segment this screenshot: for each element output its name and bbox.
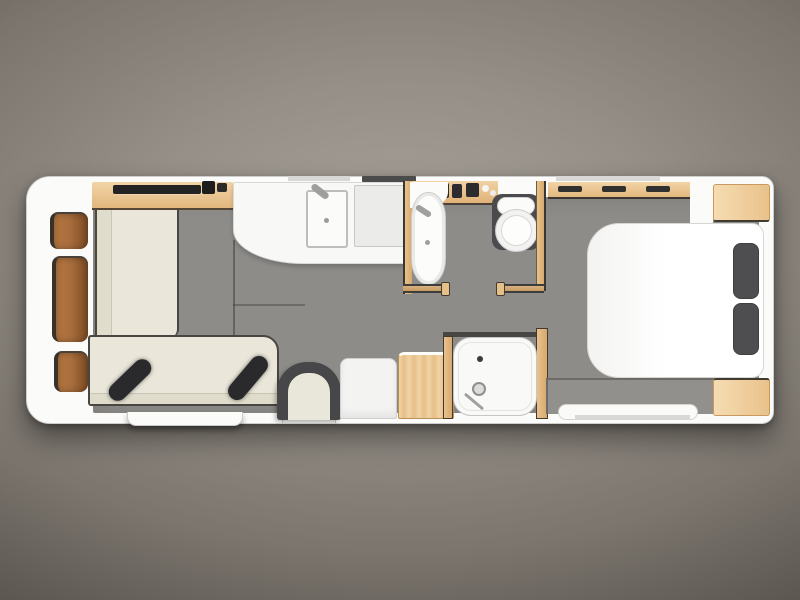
shower-drain bbox=[477, 356, 483, 362]
caravan-floorplan bbox=[26, 176, 774, 424]
window-line bbox=[575, 415, 690, 420]
window-line bbox=[556, 176, 660, 181]
bed-pillow bbox=[733, 243, 759, 299]
sink-drain bbox=[324, 218, 329, 223]
shower-head bbox=[472, 382, 486, 396]
toiletry-bottle bbox=[452, 184, 462, 198]
washroom-door-post bbox=[496, 282, 505, 296]
toiletry-bottle bbox=[466, 183, 479, 197]
bedside-cabinet bbox=[713, 184, 770, 222]
shower-wall-post bbox=[443, 336, 453, 419]
drawer-handle bbox=[602, 186, 626, 192]
front-locker bbox=[54, 351, 88, 392]
washroom-wall bbox=[536, 181, 546, 291]
bed-pillow bbox=[733, 303, 759, 355]
shower-tray bbox=[453, 337, 537, 416]
soundbar bbox=[113, 185, 201, 194]
occasional-chair bbox=[277, 362, 341, 420]
floor-seam bbox=[233, 240, 235, 336]
wall-gap bbox=[690, 180, 713, 224]
toiletry-jar bbox=[482, 185, 489, 192]
front-locker bbox=[50, 212, 88, 249]
basin-drain bbox=[425, 240, 430, 245]
entrance-step bbox=[127, 412, 243, 426]
washroom-door-post bbox=[441, 282, 450, 296]
front-locker bbox=[52, 256, 88, 342]
bedside-cabinet bbox=[713, 378, 770, 416]
media-unit bbox=[217, 183, 227, 192]
drawer-handle bbox=[558, 186, 582, 192]
drawer-handle bbox=[646, 186, 670, 192]
window-line bbox=[288, 176, 350, 181]
render-background bbox=[0, 0, 800, 600]
fridge bbox=[340, 358, 397, 419]
shower-tray-inner-line bbox=[458, 342, 532, 411]
floor-seam bbox=[233, 304, 305, 306]
toilet-bowl bbox=[495, 209, 538, 252]
media-unit bbox=[202, 181, 215, 194]
sofa-side bbox=[95, 207, 179, 337]
sofa-back-cushion bbox=[97, 209, 112, 337]
